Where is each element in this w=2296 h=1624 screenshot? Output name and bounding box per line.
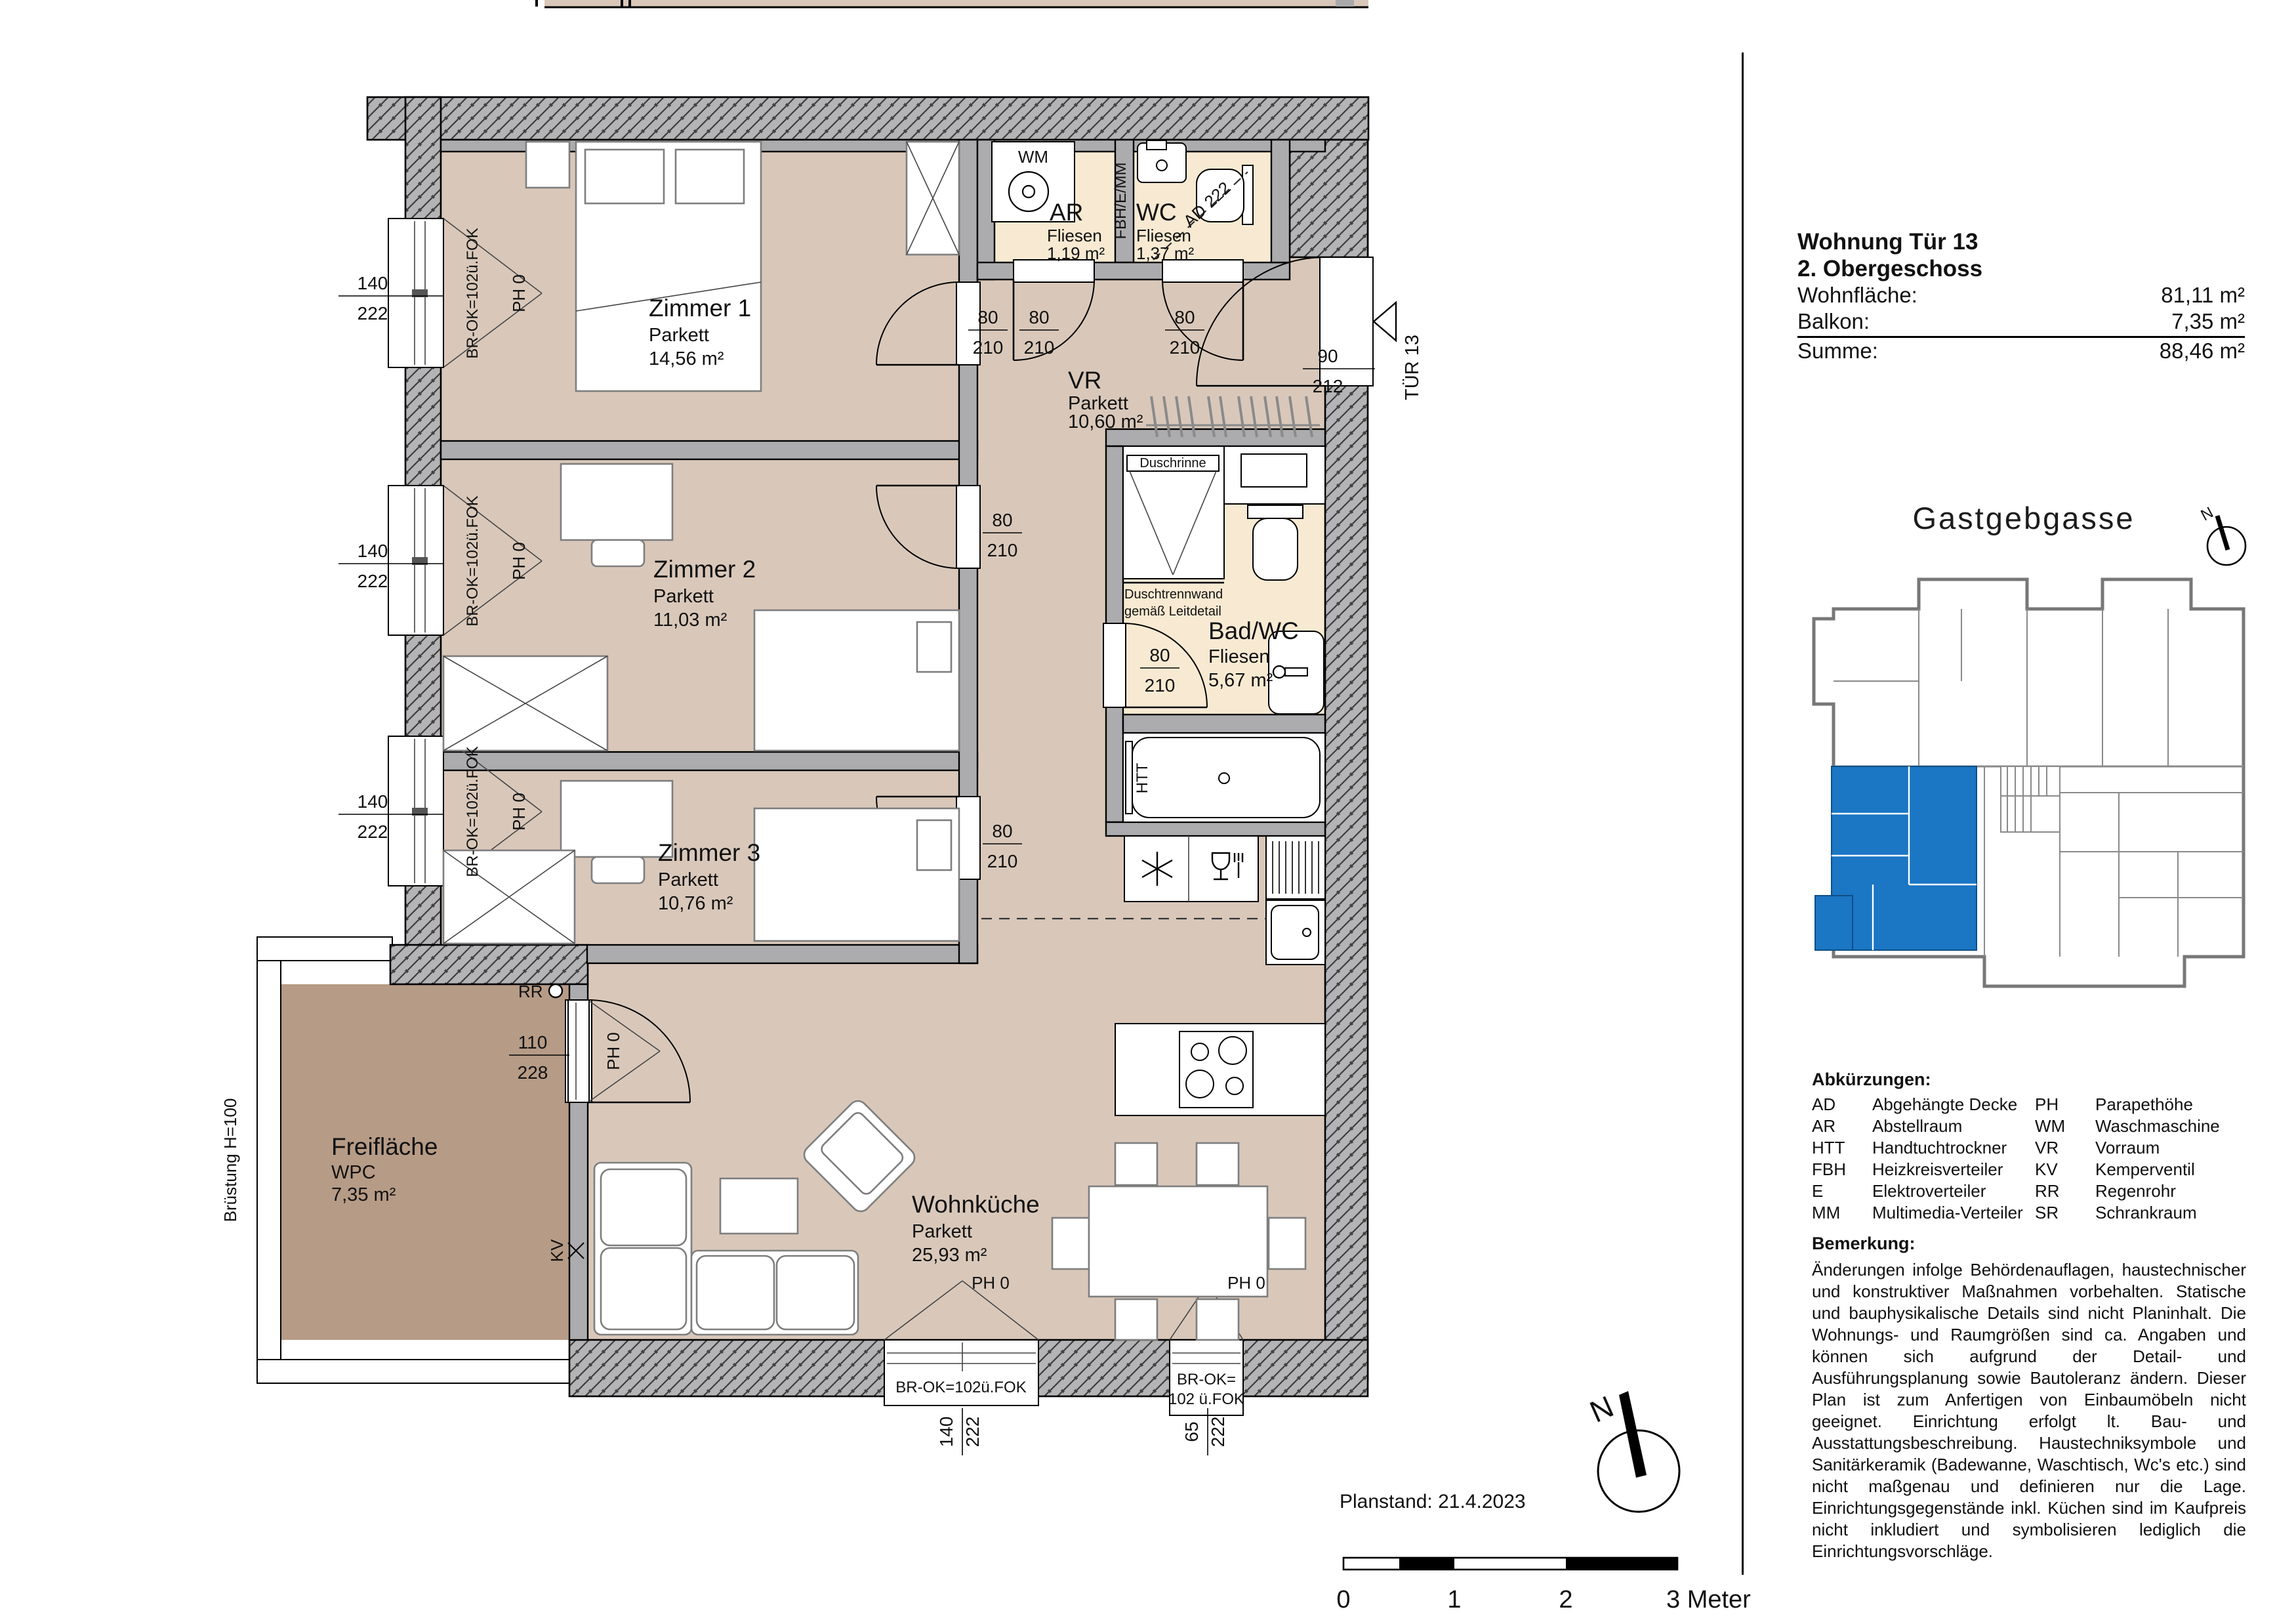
parapet-label: BR-OK= bbox=[1177, 1371, 1236, 1388]
abbr-key: FBH bbox=[1812, 1159, 1872, 1180]
abbr-row: VRVorraum bbox=[2035, 1137, 2258, 1159]
room-area-zimmer3: 10,76 m² bbox=[658, 893, 733, 914]
shaft-label: FBH/E/MM bbox=[1112, 162, 1130, 239]
room-floor-zimmer1: Parkett bbox=[649, 325, 709, 346]
dim-value: 212 bbox=[1313, 376, 1343, 396]
area-value: 88,46 m² bbox=[2160, 338, 2245, 364]
room-label-vr: VR bbox=[1068, 367, 1101, 394]
dim-value: 228 bbox=[518, 1062, 548, 1083]
dim-value: 222 bbox=[1208, 1417, 1228, 1447]
dim-value: 90 bbox=[1317, 346, 1338, 366]
parapet-label: BR-OK=102ü.FOK bbox=[464, 746, 482, 877]
dim-value: 140 bbox=[936, 1417, 956, 1447]
ph-label: PH 0 bbox=[509, 274, 529, 312]
abbreviations-title: Abkürzungen: bbox=[1812, 1070, 2258, 1090]
dim-value: 210 bbox=[1170, 337, 1200, 358]
panel-divider bbox=[1742, 52, 1744, 1575]
remark-title: Bemerkung: bbox=[1812, 1234, 2246, 1254]
room-label-freiflaeche: Freifläche bbox=[331, 1133, 438, 1160]
parapet-label: BR-OK=102ü.FOK bbox=[895, 1379, 1026, 1396]
abbr-key: KV bbox=[2035, 1159, 2095, 1180]
dim-value: 210 bbox=[1145, 675, 1176, 696]
room-label-zimmer1: Zimmer 1 bbox=[649, 295, 751, 322]
abbr-term: Abgehängte Decke bbox=[1872, 1094, 2017, 1115]
plan-date-value: 21.4.2023 bbox=[1438, 1491, 1525, 1512]
abbr-term: Elektroverteiler bbox=[1872, 1180, 1986, 1202]
room-area-bad: 5,67 m² bbox=[1208, 670, 1273, 691]
abbr-key: HTT bbox=[1812, 1137, 1872, 1159]
kitchen-counter-upper bbox=[1124, 836, 1258, 902]
abbr-term: Waschmaschine bbox=[2095, 1115, 2220, 1137]
wc-basin bbox=[1138, 140, 1186, 182]
abbr-row: FBHHeizkreisverteiler bbox=[1812, 1159, 2035, 1180]
entrance-marker: TÜR 13 bbox=[1374, 302, 1423, 400]
wardrobe-zimmer1 bbox=[907, 142, 959, 255]
dim-value: 80 bbox=[992, 510, 1012, 530]
abbr-row: ADAbgehängte Decke bbox=[1812, 1094, 2035, 1115]
room-area-vr: 10,60 m² bbox=[1068, 411, 1143, 432]
area-row: Summe: 88,46 m² bbox=[1797, 338, 2245, 364]
bed-zimmer3 bbox=[754, 808, 959, 941]
dim-value: 222 bbox=[358, 822, 388, 842]
dim-value: 80 bbox=[992, 821, 1012, 841]
area-label: Wohnfläche: bbox=[1797, 282, 1917, 308]
room-label-ar: AR bbox=[1050, 199, 1083, 226]
area-row: Wohnfläche: 81,11 m² bbox=[1797, 282, 2245, 308]
bed-zimmer2 bbox=[754, 610, 959, 751]
top-cropped-strip bbox=[537, 0, 1368, 7]
rr-pipe-icon bbox=[549, 984, 562, 997]
north-label: N bbox=[2198, 503, 2216, 524]
abbr-key: SR bbox=[2035, 1202, 2095, 1224]
abbr-row: HTTHandtuchtrockner bbox=[1812, 1137, 2035, 1159]
dim-value: 140 bbox=[358, 541, 388, 561]
kitchen-drainer bbox=[1266, 836, 1325, 899]
scale-tick-label: 3 Meter bbox=[1666, 1586, 1751, 1614]
plan-date: Planstand: 21.4.2023 bbox=[1340, 1491, 1526, 1513]
abbr-key: WM bbox=[2035, 1115, 2095, 1137]
duschrinne-label: Duschrinne bbox=[1139, 456, 1206, 470]
apartment-floor-level: 2. Obergeschoss bbox=[1797, 255, 2245, 282]
dim-value: 210 bbox=[987, 851, 1018, 871]
remark-text: Änderungen infolge Behördenauflagen, hau… bbox=[1812, 1259, 2246, 1562]
plan-date-label: Planstand: bbox=[1340, 1491, 1433, 1512]
abbr-term: Parapethöhe bbox=[2095, 1094, 2193, 1115]
ph-label: PH 0 bbox=[1227, 1273, 1265, 1293]
kv-label: KV bbox=[547, 1239, 567, 1262]
scale-tick-label: 0 bbox=[1336, 1586, 1350, 1614]
remark-block: Bemerkung: Änderungen infolge Behördenau… bbox=[1812, 1234, 2246, 1562]
rr-label: RR bbox=[518, 982, 543, 1001]
wardrobe-zimmer2 bbox=[443, 656, 607, 751]
room-floor-ar: Fliesen bbox=[1047, 226, 1102, 245]
abbr-term: Heizkreisverteiler bbox=[1872, 1159, 2003, 1180]
room-area-ar: 1,19 m² bbox=[1047, 243, 1105, 263]
highlighted-unit bbox=[1815, 766, 1977, 950]
abbreviations: Abkürzungen: ADAbgehängte Decke ARAbstel… bbox=[1812, 1070, 2258, 1224]
dim-value: 222 bbox=[358, 571, 388, 591]
room-floor-zimmer3: Parkett bbox=[658, 869, 718, 890]
abbr-key: E bbox=[1812, 1180, 1872, 1202]
stair-core bbox=[2001, 766, 2060, 832]
floorplan-page: TÜR 13 bbox=[0, 0, 2296, 1624]
wardrobe-zimmer3 bbox=[443, 850, 575, 944]
room-label-zimmer3: Zimmer 3 bbox=[658, 839, 760, 866]
room-area-wohnkueche: 25,93 m² bbox=[912, 1245, 987, 1266]
dim-value: 65 bbox=[1181, 1421, 1202, 1442]
abbr-key: VR bbox=[2035, 1137, 2095, 1159]
abbr-term: Abstellraum bbox=[1872, 1115, 1962, 1137]
room-area-freiflaeche: 7,35 m² bbox=[331, 1184, 396, 1205]
room-area-zimmer2: 11,03 m² bbox=[653, 610, 728, 631]
room-floor-bad: Fliesen bbox=[1208, 646, 1270, 667]
abbr-row: ARAbstellraum bbox=[1812, 1115, 2035, 1137]
dim-value: 110 bbox=[518, 1032, 548, 1052]
entrance-door-label: TÜR 13 bbox=[1402, 335, 1423, 400]
dim-value: 80 bbox=[1149, 645, 1170, 665]
abbr-row: SRSchrankraum bbox=[2035, 1202, 2258, 1224]
parapet-label: 102 ü.FOK bbox=[1168, 1390, 1244, 1408]
abbr-key: RR bbox=[2035, 1180, 2095, 1202]
apartment-info: Wohnung Tür 13 2. Obergeschoss Wohnfläch… bbox=[1797, 228, 2245, 364]
abbr-row: KVKemperventil bbox=[2035, 1159, 2258, 1180]
abbr-term: Handtuchtrockner bbox=[1872, 1137, 2007, 1159]
duschtrennwand-label: Duschtrennwand bbox=[1124, 587, 1223, 602]
north-compass: N bbox=[1585, 1389, 1679, 1512]
site-keyplan bbox=[1814, 579, 2244, 986]
apartment-title: Wohnung Tür 13 bbox=[1797, 228, 2245, 255]
room-area-wc: 1,37 m² bbox=[1136, 243, 1194, 263]
area-value: 81,11 m² bbox=[2161, 282, 2245, 308]
area-label: Summe: bbox=[1797, 338, 1878, 364]
kitchen-peninsula bbox=[1115, 1024, 1325, 1115]
area-row: Balkon: 7,35 m² bbox=[1797, 308, 2245, 338]
dim-value: 80 bbox=[1174, 307, 1195, 327]
parapet-label: BR-OK=102ü.FOK bbox=[464, 495, 482, 626]
ph-label: PH 0 bbox=[509, 542, 529, 580]
scale-tick-label: 2 bbox=[1559, 1586, 1572, 1614]
ph-label: PH 0 bbox=[604, 1032, 623, 1070]
abbr-row: MMMultimedia-Verteiler bbox=[1812, 1202, 2035, 1224]
room-floor-zimmer2: Parkett bbox=[653, 586, 714, 607]
abbr-row: WMWaschmaschine bbox=[2035, 1115, 2258, 1137]
dim-value: 222 bbox=[962, 1417, 983, 1447]
abbr-row: RRRegenrohr bbox=[2035, 1180, 2258, 1202]
abbr-term: Vorraum bbox=[2095, 1137, 2160, 1159]
site-north-icon: N bbox=[2198, 503, 2245, 565]
dim-value: 210 bbox=[1024, 337, 1055, 358]
room-label-bad: Bad/WC bbox=[1208, 617, 1299, 644]
scale-tick-label: 1 bbox=[1447, 1586, 1461, 1614]
dim-value: 222 bbox=[358, 303, 388, 323]
room-area-zimmer1: 14,56 m² bbox=[649, 348, 724, 369]
duschtrennwand-label2: gemäß Leitdetail bbox=[1124, 604, 1221, 619]
dim-value: 140 bbox=[358, 791, 388, 812]
abbr-row: EElektroverteiler bbox=[1812, 1180, 2035, 1202]
abbr-key: AR bbox=[1812, 1115, 1872, 1137]
kitchen-sink bbox=[1266, 900, 1325, 965]
room-floor-wc: Fliesen bbox=[1136, 226, 1191, 245]
abbr-term: Kemperventil bbox=[2095, 1159, 2195, 1180]
parapet-label: BR-OK=102ü.FOK bbox=[464, 228, 482, 358]
ph-label: PH 0 bbox=[972, 1273, 1010, 1293]
bruestung-label: Brüstung H=100 bbox=[220, 1098, 240, 1222]
bathtub bbox=[1123, 733, 1325, 822]
toilet-bad bbox=[1248, 505, 1303, 580]
abbr-row: PHParapethöhe bbox=[2035, 1094, 2258, 1115]
htt-label: HTT bbox=[1134, 762, 1151, 793]
room-label-zimmer2: Zimmer 2 bbox=[653, 556, 756, 583]
room-label-wohnkueche: Wohnküche bbox=[912, 1191, 1040, 1218]
ph-label: PH 0 bbox=[509, 793, 529, 831]
area-value: 7,35 m² bbox=[2171, 308, 2245, 335]
street-name: Gastgebgasse bbox=[1870, 500, 2178, 536]
dim-value: 210 bbox=[973, 337, 1004, 358]
north-label: N bbox=[1585, 1389, 1619, 1429]
abbr-term: Schrankraum bbox=[2095, 1202, 2197, 1224]
dim-value: 210 bbox=[987, 540, 1018, 560]
room-label-wc: WC bbox=[1136, 199, 1177, 226]
room-floor-wohnkueche: Parkett bbox=[912, 1221, 972, 1242]
room-floor-freiflaeche: WPC bbox=[331, 1162, 376, 1183]
area-label: Balkon: bbox=[1797, 308, 1870, 335]
abbr-key: AD bbox=[1812, 1094, 1872, 1115]
dim-value: 80 bbox=[1029, 307, 1049, 327]
wm-label: WM bbox=[1018, 147, 1048, 167]
scale-bar: 0 1 2 3 Meter bbox=[1336, 1558, 1751, 1614]
bad-counter bbox=[1224, 446, 1325, 504]
coffee-table bbox=[720, 1178, 798, 1234]
abbr-term: Regenrohr bbox=[2095, 1180, 2176, 1202]
abbr-key: MM bbox=[1812, 1202, 1872, 1224]
abbr-term: Multimedia-Verteiler bbox=[1872, 1202, 2023, 1224]
dim-value: 140 bbox=[358, 273, 388, 293]
stove bbox=[1179, 1031, 1253, 1108]
abbr-key: PH bbox=[2035, 1094, 2095, 1115]
dim-value: 80 bbox=[977, 307, 998, 327]
